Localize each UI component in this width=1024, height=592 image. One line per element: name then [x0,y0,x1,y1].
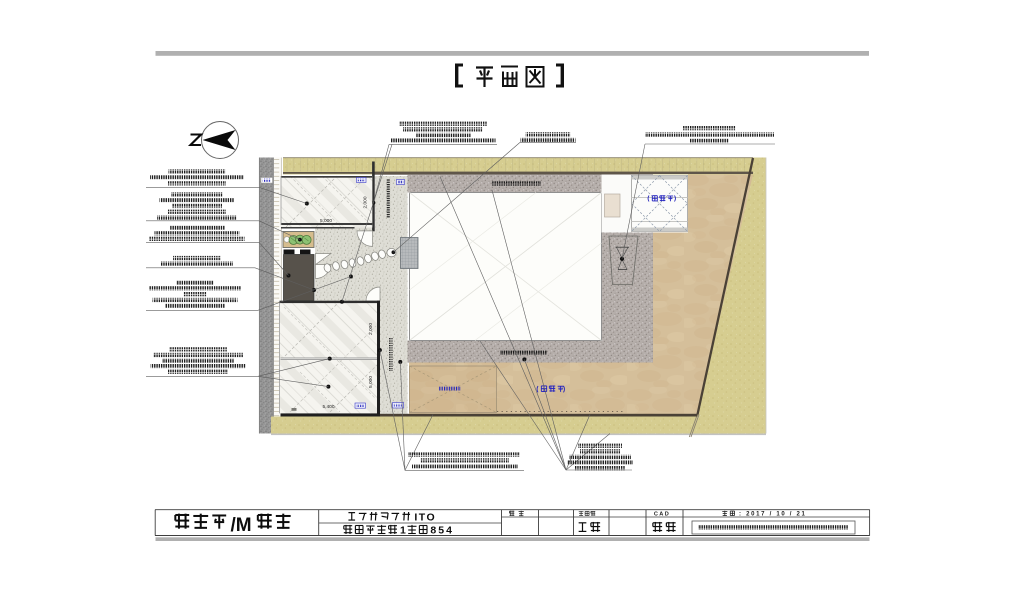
svg-text:5,000: 5,000 [320,218,332,224]
svg-text:5,000: 5,000 [368,376,374,388]
svg-text:ITO: ITO [414,512,436,524]
svg-text:5,400: 5,400 [322,404,334,410]
svg-text:: 2017 / 10 / 21: : 2017 / 10 / 21 [739,511,807,517]
svg-text:854: 854 [430,525,454,537]
svg-text:2,000: 2,000 [363,196,369,208]
svg-text:CAD: CAD [654,511,670,517]
svg-text:/M: /M [231,515,252,536]
svg-text:1: 1 [400,525,406,537]
svg-text:2,000: 2,000 [368,323,374,335]
